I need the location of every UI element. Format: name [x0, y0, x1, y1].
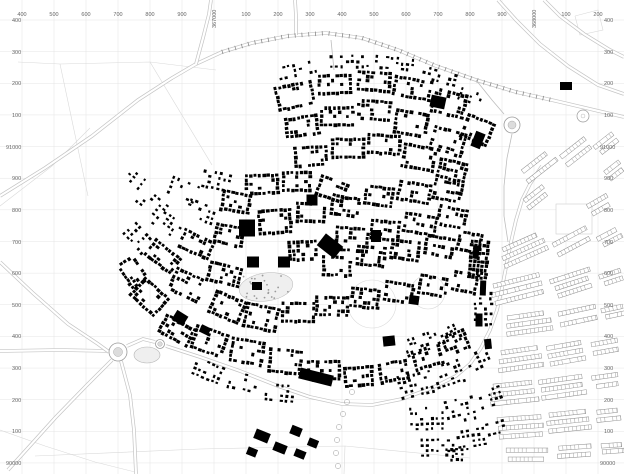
grid-coordinate-label: 600	[81, 12, 90, 18]
existing-town-block	[504, 310, 553, 337]
urban-block	[366, 132, 402, 156]
urban-block	[349, 286, 381, 311]
urban-block	[329, 193, 362, 218]
grid-coordinate-label: 100	[561, 12, 570, 18]
urban-block	[257, 207, 294, 236]
urban-block	[266, 347, 303, 377]
existing-town-block	[557, 444, 592, 459]
urban-block	[241, 301, 281, 334]
grid-coordinate-label: 900	[604, 176, 613, 182]
landmark-building	[289, 425, 303, 437]
existing-town-block	[593, 132, 619, 156]
landmark-building	[371, 230, 381, 242]
grid-coordinate-label: 800	[465, 12, 474, 18]
site-plan-svg: 4005006007008009003670001002003004005006…	[0, 0, 624, 474]
grid-coordinate-label: 400	[12, 18, 21, 24]
grid-coordinate-label: 400	[12, 334, 21, 340]
existing-town-block	[596, 408, 621, 423]
existing-town-block	[489, 272, 544, 306]
tree-clump	[134, 347, 160, 363]
grid-coordinate-label: 500	[49, 12, 58, 18]
landmark-building	[408, 295, 419, 305]
urban-block	[392, 108, 431, 140]
landmark-building	[298, 368, 334, 387]
urban-block	[287, 239, 318, 262]
urban-block	[191, 357, 226, 386]
urban-block	[435, 204, 469, 232]
urban-block	[244, 173, 280, 196]
urban-block	[176, 228, 216, 262]
grid-coordinate-label: 100	[604, 429, 613, 435]
existing-town-block	[497, 414, 544, 439]
tree-icon	[336, 424, 341, 429]
grid-coordinate-label: 900	[177, 12, 186, 18]
grid-coordinate-label: 400	[604, 334, 613, 340]
urban-block	[320, 106, 355, 127]
urban-block	[135, 187, 170, 220]
urban-block	[124, 168, 147, 190]
existing-town-block	[496, 345, 544, 373]
urban-block	[331, 138, 366, 160]
tree-icon	[335, 463, 340, 468]
grid-coordinate-label: 800	[604, 208, 613, 214]
urban-block	[435, 156, 470, 184]
urban-block	[314, 295, 350, 317]
grid-coordinate-label: 700	[113, 12, 122, 18]
urban-block	[409, 406, 444, 431]
landmark-building	[476, 314, 483, 327]
landmark-building	[253, 429, 271, 444]
existing-town-block	[546, 340, 586, 366]
urban-block	[184, 198, 218, 226]
landmark-building	[560, 82, 572, 90]
existing-town-block	[546, 409, 592, 434]
grid-coordinate-label: 300	[12, 366, 21, 372]
tree-icon	[340, 411, 345, 416]
existing-town-block	[506, 448, 548, 461]
grid-coordinate-label: 400	[604, 18, 613, 24]
grid-coordinate-label: 900	[12, 176, 21, 182]
grid-coordinate-label: 367000	[212, 10, 218, 28]
urban-block	[200, 168, 233, 193]
landmark-building	[293, 448, 306, 460]
grid-coordinate-label: 100	[12, 113, 21, 119]
landmark-building	[317, 233, 344, 258]
grid-coordinate-label: 300	[12, 50, 21, 56]
masterplan-canvas: 4005006007008009003670001002003004005006…	[0, 0, 624, 474]
urban-block	[402, 331, 436, 359]
urban-block	[205, 260, 244, 290]
grid-coordinate-label: 90000	[600, 461, 615, 467]
urban-block	[151, 208, 185, 239]
existing-town-block	[559, 137, 592, 167]
tree-icon	[334, 437, 339, 442]
existing-town-block	[591, 372, 619, 389]
grid-coordinate-label: 800	[12, 208, 21, 214]
grid-coordinate-label: 400	[337, 12, 346, 18]
landmark-building	[307, 195, 318, 206]
landmark-building	[278, 257, 290, 268]
urban-block	[293, 144, 329, 168]
grid-coordinate-label: 200	[593, 12, 602, 18]
grid-coordinate-label: 300	[305, 12, 314, 18]
grid-coordinate-label: 91000	[6, 145, 21, 151]
urban-block	[330, 55, 369, 69]
urban-block	[277, 59, 317, 80]
urban-block	[395, 179, 433, 207]
existing-town-block	[549, 267, 595, 299]
grid-coordinate-label: 200	[604, 398, 613, 404]
urban-block	[143, 238, 183, 276]
landmark-building	[272, 441, 287, 454]
urban-block	[374, 55, 414, 73]
grid-coordinate-label: 900	[497, 12, 506, 18]
urban-block	[281, 301, 316, 324]
urban-block	[282, 171, 312, 193]
urban-block	[273, 79, 317, 113]
existing-town-block	[601, 442, 624, 454]
urban-block	[362, 184, 395, 209]
grid-coordinate-label: 200	[273, 12, 282, 18]
urban-block	[391, 74, 434, 102]
urban-block	[456, 427, 487, 450]
existing-town-block	[489, 380, 539, 407]
grid-coordinate-label: 500	[369, 12, 378, 18]
urban-block	[356, 70, 392, 94]
urban-block	[166, 175, 201, 205]
grid-coordinate-label: 500	[12, 303, 21, 309]
urban-block	[356, 98, 393, 122]
grid-coordinate-label: 91000	[600, 145, 615, 151]
grid-coordinate-label: 100	[12, 429, 21, 435]
urban-block	[416, 273, 449, 299]
grid-coordinate-label: 200	[12, 81, 21, 87]
landmark-building	[484, 339, 492, 350]
grid-coordinate-label: 200	[604, 81, 613, 87]
grid-coordinate-label: 300	[604, 366, 613, 372]
grid-coordinate-label: 100	[241, 12, 250, 18]
grid-coordinate-label: 90000	[6, 461, 21, 467]
grid-coordinate-label: 600	[12, 271, 21, 277]
grid-coordinate-label: 200	[12, 398, 21, 404]
landmark-building	[383, 335, 396, 346]
landmark-building	[247, 257, 259, 268]
grid-coordinate-label: 700	[604, 240, 613, 246]
grid-coordinate-label: 800	[145, 12, 154, 18]
tree-icon	[333, 450, 338, 455]
grid-coordinate-label: 600	[401, 12, 410, 18]
existing-town-block	[558, 304, 598, 327]
existing-town-block	[538, 374, 587, 401]
grid-coordinate-label: 700	[433, 12, 442, 18]
grid-coordinate-label: 300	[604, 50, 613, 56]
urban-block	[355, 244, 388, 269]
urban-block	[219, 189, 253, 216]
urban-block	[317, 73, 352, 96]
grid-coordinate-label: 100	[604, 113, 613, 119]
pond	[577, 110, 589, 122]
urban-block	[115, 254, 150, 291]
grid-coordinate-label: 600	[604, 271, 613, 277]
urban-block	[283, 113, 321, 140]
landmark-building	[252, 282, 262, 290]
tree-icon	[349, 389, 354, 394]
urban-block	[422, 233, 456, 260]
grid-coordinate-label: 368000	[532, 10, 538, 28]
existing-town-block	[591, 338, 619, 356]
urban-block	[228, 336, 267, 368]
landmark-building	[480, 280, 487, 295]
grid-coordinate-label: 700	[12, 240, 21, 246]
grid-coordinate-label: 500	[604, 303, 613, 309]
landmark-building	[473, 245, 480, 258]
urban-block	[476, 385, 504, 410]
urban-block	[122, 221, 156, 256]
urban-block	[321, 255, 352, 278]
landmark-building	[239, 220, 255, 237]
urban-block	[343, 365, 375, 389]
